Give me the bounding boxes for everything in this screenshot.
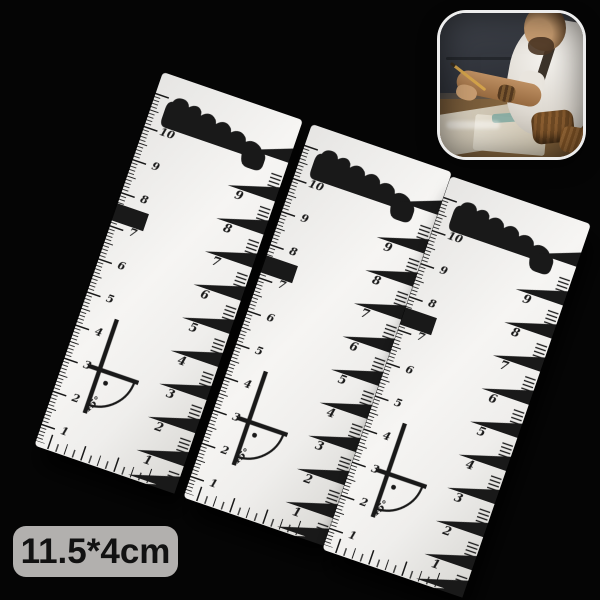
lifestyle-photo: [440, 13, 583, 157]
angle-label: 45°: [82, 395, 104, 415]
angle-label: 45°: [370, 499, 392, 519]
photo-vignette: [440, 13, 583, 157]
angle-label: 45°: [231, 447, 253, 467]
size-label: 11.5*4cm: [13, 526, 178, 577]
product-image-canvas: 109876543211098765432145°109876543211098…: [0, 0, 600, 600]
